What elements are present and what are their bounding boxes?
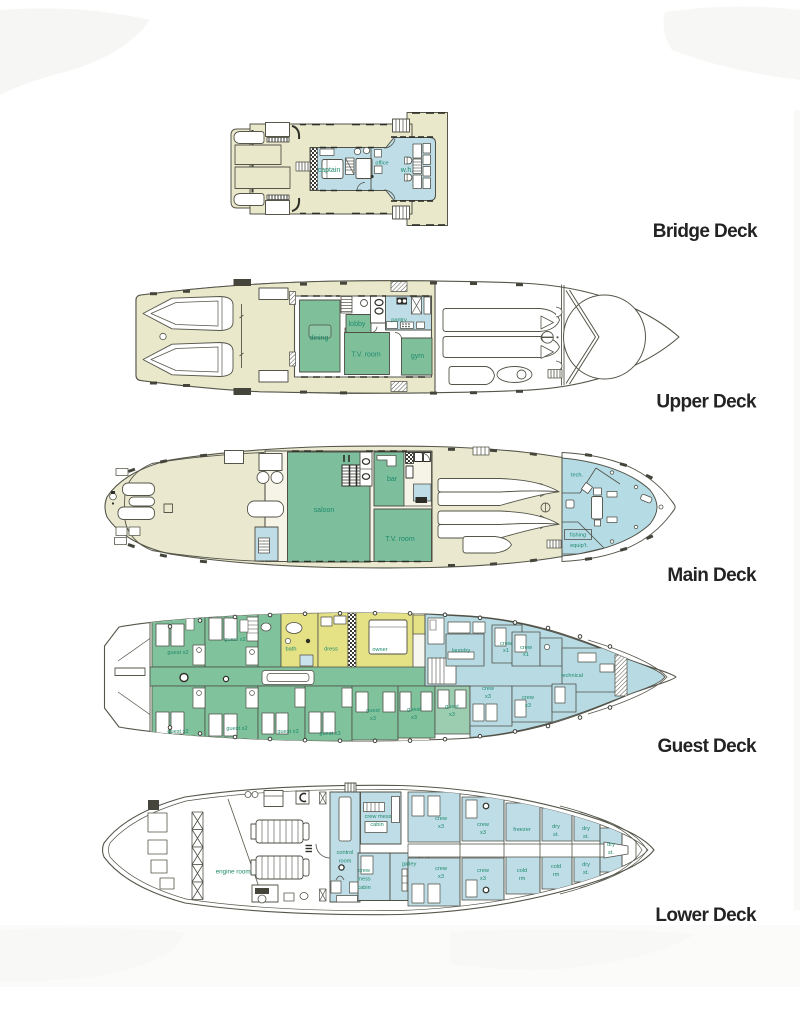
svg-text:room: room xyxy=(339,859,352,865)
svg-text:galley: galley xyxy=(402,862,417,868)
svg-text:Guest Deck: Guest Deck xyxy=(657,736,757,757)
svg-text:crew: crew xyxy=(435,866,448,872)
svg-text:st.: st. xyxy=(583,870,589,876)
svg-text:cabin: cabin xyxy=(357,885,370,891)
svg-text:st.: st. xyxy=(553,832,559,838)
svg-text:T.V. room: T.V. room xyxy=(385,536,414,543)
svg-text:w.h.: w.h. xyxy=(400,167,414,174)
svg-text:crew: crew xyxy=(358,868,371,874)
svg-text:guest: guest xyxy=(407,707,421,713)
svg-text:crew: crew xyxy=(435,816,448,822)
svg-text:x3: x3 xyxy=(525,703,531,709)
svg-text:guest x2: guest x2 xyxy=(167,650,188,656)
svg-text:x3: x3 xyxy=(449,712,455,718)
svg-text:tech.: tech. xyxy=(571,473,584,479)
svg-text:captain: captain xyxy=(318,167,341,174)
svg-text:Bridge Deck: Bridge Deck xyxy=(653,221,758,242)
svg-text:T.V. room: T.V. room xyxy=(351,352,380,359)
svg-text:mess: mess xyxy=(357,877,371,883)
svg-text:cabin: cabin xyxy=(370,822,383,828)
svg-text:dry: dry xyxy=(607,842,615,848)
svg-text:x3: x3 xyxy=(438,824,444,830)
svg-text:pantry: pantry xyxy=(391,318,407,324)
svg-text:guest: guest xyxy=(445,704,459,710)
svg-text:gym: gym xyxy=(411,353,424,360)
svg-text:guest x2: guest x2 xyxy=(224,637,245,643)
svg-text:crew: crew xyxy=(482,686,495,692)
svg-text:st.: st. xyxy=(608,850,614,856)
svg-text:crew mess: crew mess xyxy=(365,814,392,820)
svg-text:dry: dry xyxy=(552,824,560,830)
svg-text:crew: crew xyxy=(520,645,533,651)
svg-text:guest x3: guest x3 xyxy=(277,729,298,735)
svg-text:crew: crew xyxy=(522,695,535,701)
svg-text:freezer: freezer xyxy=(513,827,531,833)
svg-text:cold: cold xyxy=(551,864,561,870)
svg-text:x1: x1 xyxy=(503,648,509,654)
svg-text:guest: guest xyxy=(366,708,380,714)
svg-text:owner: owner xyxy=(372,647,387,653)
svg-text:crew: crew xyxy=(477,822,490,828)
svg-text:dress: dress xyxy=(324,647,338,653)
svg-text:Upper Deck: Upper Deck xyxy=(656,392,757,413)
svg-text:laundry: laundry xyxy=(452,648,471,654)
svg-text:control: control xyxy=(337,850,354,856)
svg-text:crew: crew xyxy=(500,641,513,647)
svg-text:x3: x3 xyxy=(370,716,376,722)
svg-text:x3: x3 xyxy=(438,874,444,880)
svg-text:rm: rm xyxy=(553,872,560,878)
svg-text:cold: cold xyxy=(517,868,527,874)
svg-text:engine room.: engine room. xyxy=(216,869,253,876)
svg-text:bar: bar xyxy=(387,476,398,483)
svg-text:saloon: saloon xyxy=(314,507,335,514)
svg-text:technical: technical xyxy=(561,673,583,679)
svg-text:x3: x3 xyxy=(480,876,486,882)
svg-text:x3: x3 xyxy=(480,830,486,836)
svg-text:rm: rm xyxy=(519,876,526,882)
svg-text:dining: dining xyxy=(310,335,329,342)
svg-text:guest x3: guest x3 xyxy=(319,731,340,737)
svg-text:crew: crew xyxy=(477,868,490,874)
svg-text:fishing: fishing xyxy=(570,533,586,539)
svg-text:equip't.: equip't. xyxy=(570,543,588,549)
svg-text:dry: dry xyxy=(582,826,590,832)
svg-text:x3: x3 xyxy=(411,715,417,721)
svg-text:Main Deck: Main Deck xyxy=(667,565,757,586)
svg-text:dry: dry xyxy=(582,862,590,868)
svg-text:x3: x3 xyxy=(485,694,491,700)
svg-text:office: office xyxy=(375,161,388,167)
svg-text:Lower Deck: Lower Deck xyxy=(655,905,757,926)
svg-text:x1: x1 xyxy=(523,652,529,658)
svg-text:guest x2: guest x2 xyxy=(167,729,188,735)
svg-text:bath: bath xyxy=(286,647,297,653)
svg-text:lobby: lobby xyxy=(349,321,366,328)
svg-text:st.: st. xyxy=(583,834,589,840)
svg-text:guest x2: guest x2 xyxy=(226,726,247,732)
